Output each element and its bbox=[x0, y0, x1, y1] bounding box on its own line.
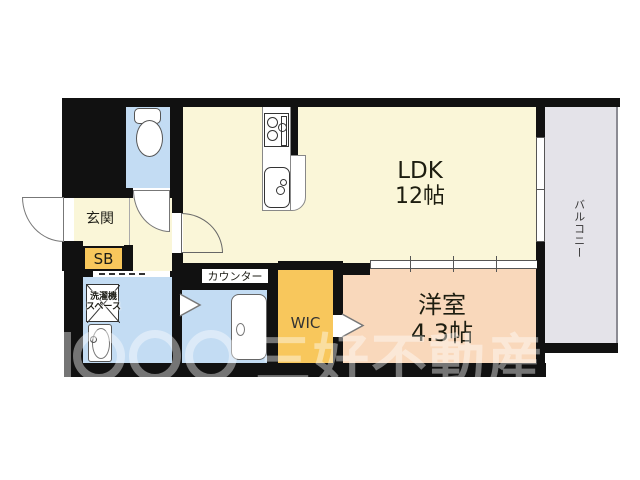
bathtub-icon bbox=[231, 294, 267, 360]
wall-balcony-bottom bbox=[545, 343, 618, 353]
shoe-box: SB bbox=[83, 246, 124, 271]
window-tick bbox=[410, 256, 411, 272]
wall-wic-right bbox=[333, 261, 343, 363]
wall-kitchen-stub bbox=[290, 107, 298, 155]
laundry-space-box: 洗濯機 スペース bbox=[86, 284, 119, 322]
window-tick bbox=[453, 256, 454, 272]
toilet-bowl-icon bbox=[136, 120, 163, 157]
western-room-size: 4.3帖 bbox=[352, 320, 532, 348]
wall-toilet-right bbox=[170, 107, 183, 198]
bathroom-folding-door-icon bbox=[179, 293, 202, 317]
wall-washroom-right bbox=[172, 277, 182, 363]
ldk-label: LDK 12帖 bbox=[330, 158, 510, 210]
wall-left-lower bbox=[64, 271, 83, 377]
counter-label-box: カウンター bbox=[200, 267, 270, 285]
washroom-sliding-door bbox=[93, 271, 170, 277]
wall-bottom bbox=[64, 363, 546, 377]
entrance-label: 玄関 bbox=[74, 211, 126, 227]
balcony-label: バルコニー bbox=[572, 198, 585, 260]
wall-bath-right bbox=[267, 290, 278, 363]
stove-icon bbox=[264, 113, 289, 147]
laundry-space-label: 洗濯機 スペース bbox=[83, 292, 124, 313]
wic-label: WIC bbox=[278, 315, 333, 332]
wall-left-mid bbox=[62, 241, 83, 271]
ldk-size: 12帖 bbox=[330, 184, 510, 209]
entrance-door-arc bbox=[22, 197, 64, 242]
western-room-label: 洋室 4.3帖 bbox=[352, 292, 532, 347]
kitchen-counter-ext bbox=[290, 155, 306, 211]
entrance-step-line bbox=[129, 198, 130, 245]
kitchen-sink-icon bbox=[264, 167, 290, 208]
window-tick bbox=[536, 189, 545, 190]
structure-block bbox=[62, 98, 126, 198]
floor-plan: 洗濯機 スペース LDK 12帖 洋室 4.3帖 玄関 SB カウンター WIC… bbox=[0, 0, 640, 480]
wall-western-topleft bbox=[343, 263, 370, 275]
window-tick bbox=[496, 256, 497, 272]
washbasin-icon bbox=[88, 324, 112, 362]
wall-sb-right bbox=[124, 245, 133, 271]
